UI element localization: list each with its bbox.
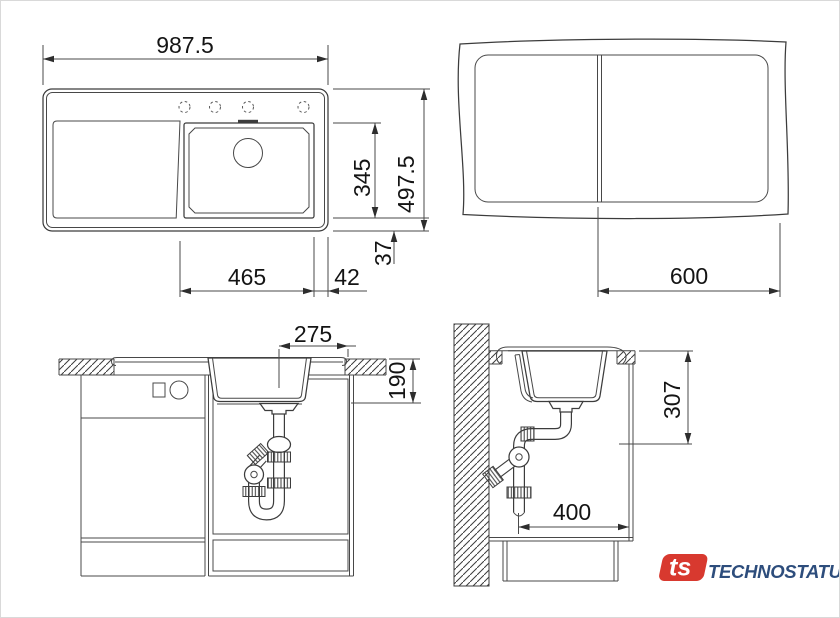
union-nut bbox=[243, 487, 265, 497]
dim-overall-depth: 497.5 bbox=[393, 155, 419, 213]
counter-hatch-left bbox=[59, 359, 114, 375]
dim-install-height: 307 bbox=[659, 381, 685, 419]
dim-front-offset: 275 bbox=[294, 321, 332, 347]
siphon-front bbox=[243, 404, 298, 515]
bowl-outer bbox=[184, 123, 314, 218]
drain-flange bbox=[260, 404, 298, 415]
union-nut bbox=[268, 478, 291, 488]
cutout-centerline bbox=[598, 56, 602, 202]
appliance-knob bbox=[170, 381, 188, 399]
technical-drawing-sheet: 987.5 497.5 345 37 465 42 600 bbox=[0, 0, 840, 618]
drain-flange bbox=[549, 402, 583, 413]
dim-bowl-length: 345 bbox=[349, 159, 375, 197]
union-nut bbox=[268, 452, 291, 462]
faucet-hole-icon bbox=[210, 102, 221, 113]
sink-outline-outer bbox=[43, 89, 328, 231]
faucet-hole-icon bbox=[243, 102, 254, 113]
drainboard bbox=[53, 121, 180, 218]
dim-bowl-depth: 190 bbox=[384, 362, 410, 400]
union-nut bbox=[521, 427, 534, 441]
counter-hatch-wall-side bbox=[489, 351, 502, 364]
logo: ts TECHNOSTATUS bbox=[658, 554, 840, 583]
logo-mark: ts bbox=[658, 554, 709, 582]
dim-cutout-offset: 600 bbox=[670, 263, 708, 289]
drain-hole bbox=[234, 139, 263, 168]
union-nut bbox=[507, 487, 531, 498]
dim-wall-clearance: 400 bbox=[553, 499, 591, 525]
logo-mark-text: ts bbox=[669, 554, 691, 582]
cabinets-front bbox=[81, 375, 354, 576]
side-view: 400 307 bbox=[454, 324, 693, 586]
faucet-hole-icon bbox=[179, 102, 190, 113]
cutout-outline bbox=[475, 55, 768, 202]
bowl-section-side bbox=[522, 351, 607, 402]
countertop-outline bbox=[458, 39, 788, 218]
dim-bowl-width: 465 bbox=[228, 264, 266, 290]
bowl-inner bbox=[189, 128, 309, 213]
logo-text: TECHNOSTATUS bbox=[708, 561, 840, 582]
dim-overall-width: 987.5 bbox=[156, 32, 214, 58]
dim-right-offset: 42 bbox=[334, 264, 360, 290]
faucet-hole-icon bbox=[298, 102, 309, 113]
overflow-slot bbox=[238, 120, 258, 123]
wall-section bbox=[454, 324, 489, 586]
outlet-joint bbox=[509, 447, 529, 467]
cutout-view: 600 bbox=[458, 39, 788, 297]
plinth bbox=[503, 541, 618, 581]
front-view: 275 190 bbox=[59, 321, 421, 576]
pipe-ring bbox=[268, 437, 291, 453]
dim-bottom-offset: 37 bbox=[370, 240, 396, 266]
appliance-button bbox=[153, 383, 165, 397]
counter-hatch-right bbox=[345, 359, 386, 375]
cabinet-base-panel bbox=[213, 540, 348, 571]
top-view: 987.5 497.5 345 37 465 42 bbox=[43, 32, 430, 297]
drawing-svg: 987.5 497.5 345 37 465 42 600 bbox=[1, 1, 840, 618]
bowl-section-front bbox=[208, 358, 311, 402]
wall-outlet-pipe bbox=[497, 462, 513, 474]
outlet-joint bbox=[245, 465, 264, 484]
